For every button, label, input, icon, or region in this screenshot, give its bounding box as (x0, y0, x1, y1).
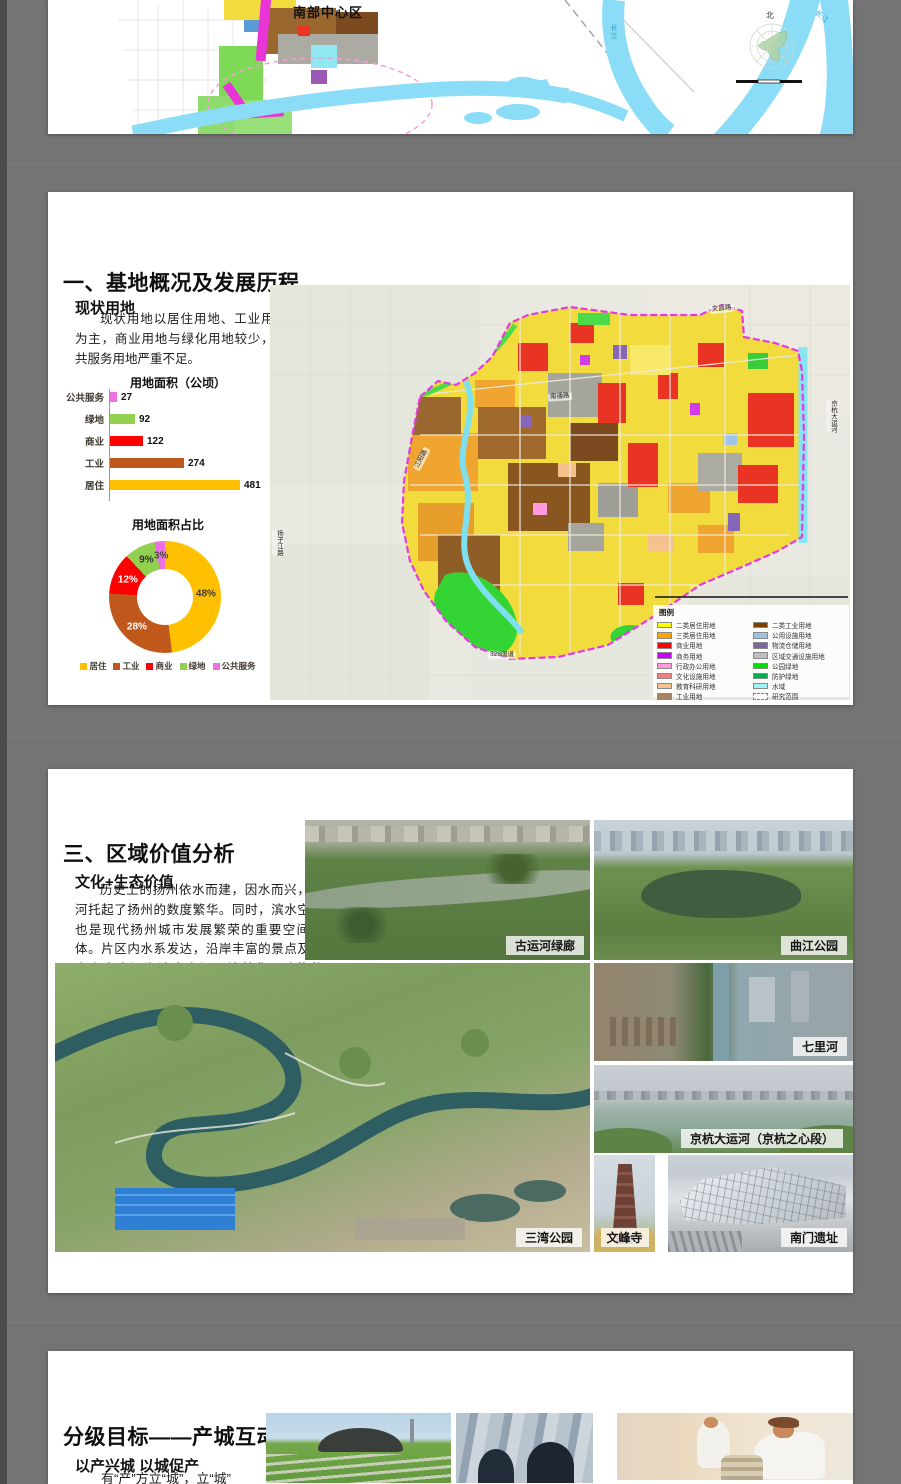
map-legend-swatch (753, 683, 768, 690)
map-legend-label: 二类工业用地 (772, 620, 812, 630)
photo-decor (527, 1442, 574, 1483)
map-legend-row: 防护绿地 (753, 671, 849, 681)
bar (110, 480, 240, 490)
slide-regional-map[interactable]: 南部中心区 北 长江 长江 (48, 0, 853, 134)
map-legend-label: 水域 (772, 681, 785, 691)
page-divider (7, 737, 901, 738)
map-legend-swatch (657, 693, 672, 700)
donut-legend: 居住工业商业绿地公共服务 (48, 660, 288, 672)
donut-chart-title: 用地面积占比 (88, 516, 248, 533)
bar-row: 公共服务27 (52, 392, 292, 402)
bar-value: 481 (244, 480, 261, 491)
page-title: 三、区域价值分析 (63, 838, 235, 868)
bar-chart-title: 用地面积（公顷） (78, 374, 278, 391)
photo-decor (328, 907, 396, 943)
bar (110, 392, 117, 402)
photo-decor (768, 1417, 799, 1428)
map-legend-row: 区域交通设施用地 (753, 651, 849, 661)
map-legend-row: 三类居住用地 (657, 630, 753, 640)
map-legend-swatch (753, 642, 768, 649)
legend-swatch (146, 663, 153, 670)
map-legend-swatch (753, 673, 768, 680)
donut-chart: 48%28%12%9%3% (109, 541, 221, 653)
slide-regional-value[interactable]: 三、区域价值分析 文化+生态价值 历史上的扬州依水而建，因水而兴，运河托起了扬州… (48, 769, 853, 1293)
map-legend-row: 水域 (753, 681, 849, 691)
map-legend-label: 区域交通设施用地 (772, 651, 825, 661)
donut-percent-label: 12% (118, 574, 138, 585)
donut-legend-item: 公共服务 (213, 660, 256, 672)
map-legend-column: 二类工业用地公用设施用地物流仓储用地区域交通设施用地公园绿地防护绿地水域研究范围 (753, 620, 849, 702)
legend-label: 工业 (122, 660, 139, 672)
photo-caption: 南门遗址 (781, 1228, 847, 1247)
legend-swatch (180, 663, 187, 670)
road-label: 扬子江路 (272, 530, 284, 556)
donut-percent-label: 48% (196, 589, 216, 600)
photo-decor (594, 831, 853, 851)
river-name-label: 长江 (608, 24, 618, 40)
photo-decor (266, 1454, 451, 1483)
photo-decor (318, 1428, 403, 1452)
photo-park-hill[interactable] (266, 1413, 451, 1483)
map-legend-swatch (753, 663, 768, 670)
legend-label: 公共服务 (222, 660, 256, 672)
photo-decor (610, 1017, 677, 1046)
photo-qili-river[interactable]: 七里河 (594, 963, 853, 1061)
map-legend-swatch (657, 632, 672, 639)
page-divider (7, 1322, 901, 1323)
map-legend-row: 二类居住用地 (657, 620, 753, 630)
road-label: 328国道 (488, 651, 516, 660)
photo-decor (594, 1091, 853, 1100)
photo-decor (478, 1449, 514, 1483)
photo-decor (713, 963, 729, 1061)
legend-swatch (213, 663, 220, 670)
bar-chart: 公共服务27绿地92商业122工业274居住481 (52, 392, 292, 502)
bar-row: 商业122 (52, 436, 292, 446)
bar (110, 414, 135, 424)
bar-value: 92 (139, 414, 150, 425)
map-legend-row: 公园绿地 (753, 661, 849, 671)
map-legend-label: 文化设施用地 (676, 671, 716, 681)
map-legend-label: 公用设施用地 (772, 630, 812, 640)
map-legend-label: 工业用地 (676, 691, 702, 701)
legend-swatch (80, 663, 87, 670)
map-legend-swatch (657, 663, 672, 670)
page-title: 分级目标——产城互动 (63, 1421, 278, 1451)
legend-label: 商业 (155, 660, 172, 672)
photo-business-meeting[interactable] (456, 1413, 593, 1483)
photo-grand-canal[interactable]: 京杭大运河（京杭之心段） (594, 1065, 853, 1153)
photo-caption: 京杭大运河（京杭之心段） (681, 1129, 843, 1148)
map-legend-label: 商务用地 (676, 651, 702, 661)
land-use-map[interactable]: 文昌路 南通路 江阳路 扬子江路 京杭大运河 328国道 图例 二类居住用地三类… (270, 285, 850, 700)
body-paragraph: 有“产”方立“城”，立“城” (75, 1469, 290, 1484)
donut-legend-item: 商业 (146, 660, 172, 672)
body-paragraph: 现状用地以居住用地、工业用地为主，商业用地与绿化用地较少，公共服务用地严重不足。 (75, 310, 287, 369)
photo-wenfeng-temple[interactable]: 文峰寺 (594, 1155, 655, 1252)
regional-map-graphic (48, 0, 853, 134)
map-legend-swatch (753, 622, 768, 629)
road-label: 京杭大运河 (826, 400, 838, 433)
map-legend-swatch (657, 683, 672, 690)
photo-caption: 曲江公园 (781, 936, 847, 955)
photo-decor (749, 977, 775, 1022)
slide-graded-goals[interactable]: 分级目标——产城互动 以产兴城 以城促产 有“产”方立“城”，立“城” (48, 1351, 853, 1484)
map-legend-label: 物流仓储用地 (772, 640, 812, 650)
bar (110, 436, 143, 446)
photo-south-gate-ruins[interactable]: 南门遗址 (668, 1155, 853, 1252)
map-legend-row: 文化设施用地 (657, 671, 753, 681)
map-legend-label: 商业用地 (676, 640, 702, 650)
map-legend: 图例 二类居住用地三类居住用地商业用地商务用地行政办公用地文化设施用地教育科研用… (653, 605, 849, 697)
photo-ancient-canal-corridor[interactable]: 古运河绿廊 (305, 820, 590, 960)
bar-row: 居住481 (52, 480, 292, 490)
photo-hotel-service[interactable] (617, 1413, 853, 1480)
bar-category-label: 居住 (52, 478, 110, 492)
photo-decor (668, 1231, 742, 1252)
donut-percent-label: 9% (139, 555, 153, 566)
map-legend-swatch (657, 642, 672, 649)
pagoda-shape (613, 1164, 637, 1230)
bar-category-label: 绿地 (52, 412, 110, 426)
map-legend-label: 行政办公用地 (676, 661, 716, 671)
region-name-label: 南部中心区 (293, 2, 363, 21)
map-legend-row: 行政办公用地 (657, 661, 753, 671)
photo-decor (791, 971, 809, 1022)
map-legend-row: 公用设施用地 (753, 630, 849, 640)
map-legend-row: 物流仓储用地 (753, 640, 849, 650)
map-legend-swatch (657, 622, 672, 629)
map-legend-label: 教育科研用地 (676, 681, 716, 691)
photo-decor (721, 1455, 763, 1480)
map-legend-label: 二类居住用地 (676, 620, 716, 630)
photo-decor (641, 870, 802, 918)
bar-row: 绿地92 (52, 414, 292, 424)
photo-decor (410, 1419, 414, 1444)
bar-row: 工业274 (52, 458, 292, 468)
map-legend-label: 防护绿地 (772, 671, 798, 681)
photo-decor (305, 826, 590, 843)
map-legend-column: 二类居住用地三类居住用地商业用地商务用地行政办公用地文化设施用地教育科研用地工业… (657, 620, 753, 702)
canopy-shape (679, 1167, 846, 1225)
donut-percent-labels: 48%28%12%9%3% (109, 541, 221, 653)
bar (110, 458, 184, 468)
page-divider (7, 163, 901, 164)
bar-category-label: 工业 (52, 456, 110, 470)
photo-decor (754, 1432, 825, 1479)
photo-caption: 古运河绿廊 (506, 936, 584, 955)
compass-rose (750, 24, 794, 68)
map-legend-row: 二类工业用地 (753, 620, 849, 630)
photo-decor (594, 1128, 672, 1153)
donut-percent-label: 3% (154, 551, 168, 562)
map-legend-row: 教育科研用地 (657, 681, 753, 691)
map-legend-row: 商业用地 (657, 640, 753, 650)
map-legend-row: 商务用地 (657, 651, 753, 661)
scale-bar (736, 80, 802, 83)
legend-label: 绿地 (189, 660, 206, 672)
map-legend-row: 研究范围 (753, 691, 849, 701)
map-legend-swatch (657, 652, 672, 659)
map-legend-swatch (753, 632, 768, 639)
photo-caption: 三湾公园 (516, 1228, 582, 1247)
bar-category-label: 商业 (52, 434, 110, 448)
map-legend-row: 工业用地 (657, 691, 753, 701)
donut-percent-label: 28% (127, 621, 147, 632)
viewer-canvas: { "page": { "background": "#747474", "pa… (0, 0, 901, 1484)
photo-caption: 七里河 (793, 1037, 847, 1056)
donut-legend-item: 居住 (80, 660, 106, 672)
map-legend-label: 公园绿地 (772, 661, 798, 671)
viewport-left-edge (0, 0, 7, 1484)
photo-decor (476, 854, 550, 885)
map-legend-swatch (753, 652, 768, 659)
photo-caption: 文峰寺 (600, 1228, 648, 1247)
photo-sanwan-park[interactable]: 三湾公园 (55, 963, 590, 1252)
legend-label: 居住 (89, 660, 106, 672)
map-legend-swatch (657, 673, 672, 680)
photo-decor (55, 963, 590, 1252)
map-legend-title: 图例 (659, 607, 849, 618)
north-label: 北 (766, 10, 774, 21)
photo-qujiang-park[interactable]: 曲江公园 (594, 820, 853, 960)
map-legend-label: 研究范围 (772, 691, 798, 701)
donut-legend-item: 绿地 (180, 660, 206, 672)
map-legend-swatch (753, 693, 768, 700)
bar-value: 274 (188, 458, 205, 469)
legend-swatch (113, 663, 120, 670)
map-legend-label: 三类居住用地 (676, 630, 716, 640)
bar-category-label: 公共服务 (52, 390, 110, 404)
donut-legend-item: 工业 (113, 660, 139, 672)
slide-site-overview[interactable]: 一、基地概况及发展历程 现状用地 现状用地以居住用地、工业用地为主，商业用地与绿… (48, 192, 853, 705)
bar-value: 122 (147, 436, 164, 447)
page-title: 一、基地概况及发展历程 (63, 267, 300, 297)
bar-value: 27 (121, 392, 132, 403)
